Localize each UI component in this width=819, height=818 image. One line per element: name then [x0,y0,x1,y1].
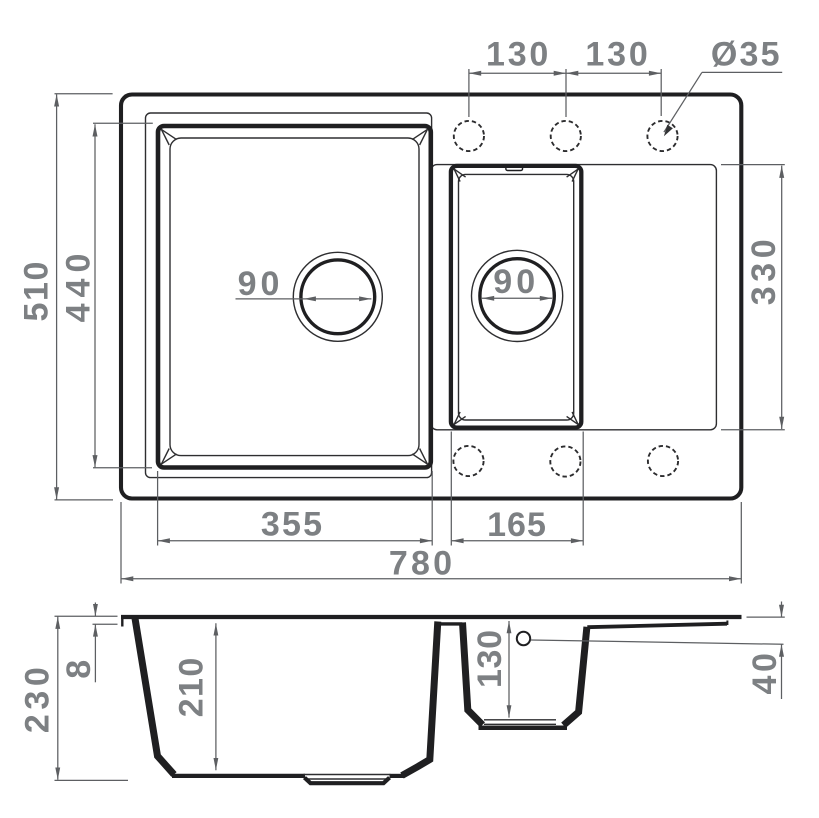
svg-text:40: 40 [746,650,784,695]
svg-text:510: 510 [17,260,55,322]
svg-text:330: 330 [745,235,783,306]
svg-text:355: 355 [261,505,324,543]
svg-text:440: 440 [59,248,97,323]
svg-text:Ø35: Ø35 [711,35,782,73]
svg-text:8: 8 [60,660,98,679]
svg-text:130: 130 [486,35,551,73]
svg-text:130: 130 [471,629,509,688]
svg-text:780: 780 [389,544,455,582]
svg-text:230: 230 [19,663,57,734]
svg-text:90: 90 [238,265,284,303]
svg-text:90: 90 [493,263,539,301]
svg-text:130: 130 [585,35,650,73]
svg-text:210: 210 [173,656,211,717]
svg-text:165: 165 [487,506,547,544]
